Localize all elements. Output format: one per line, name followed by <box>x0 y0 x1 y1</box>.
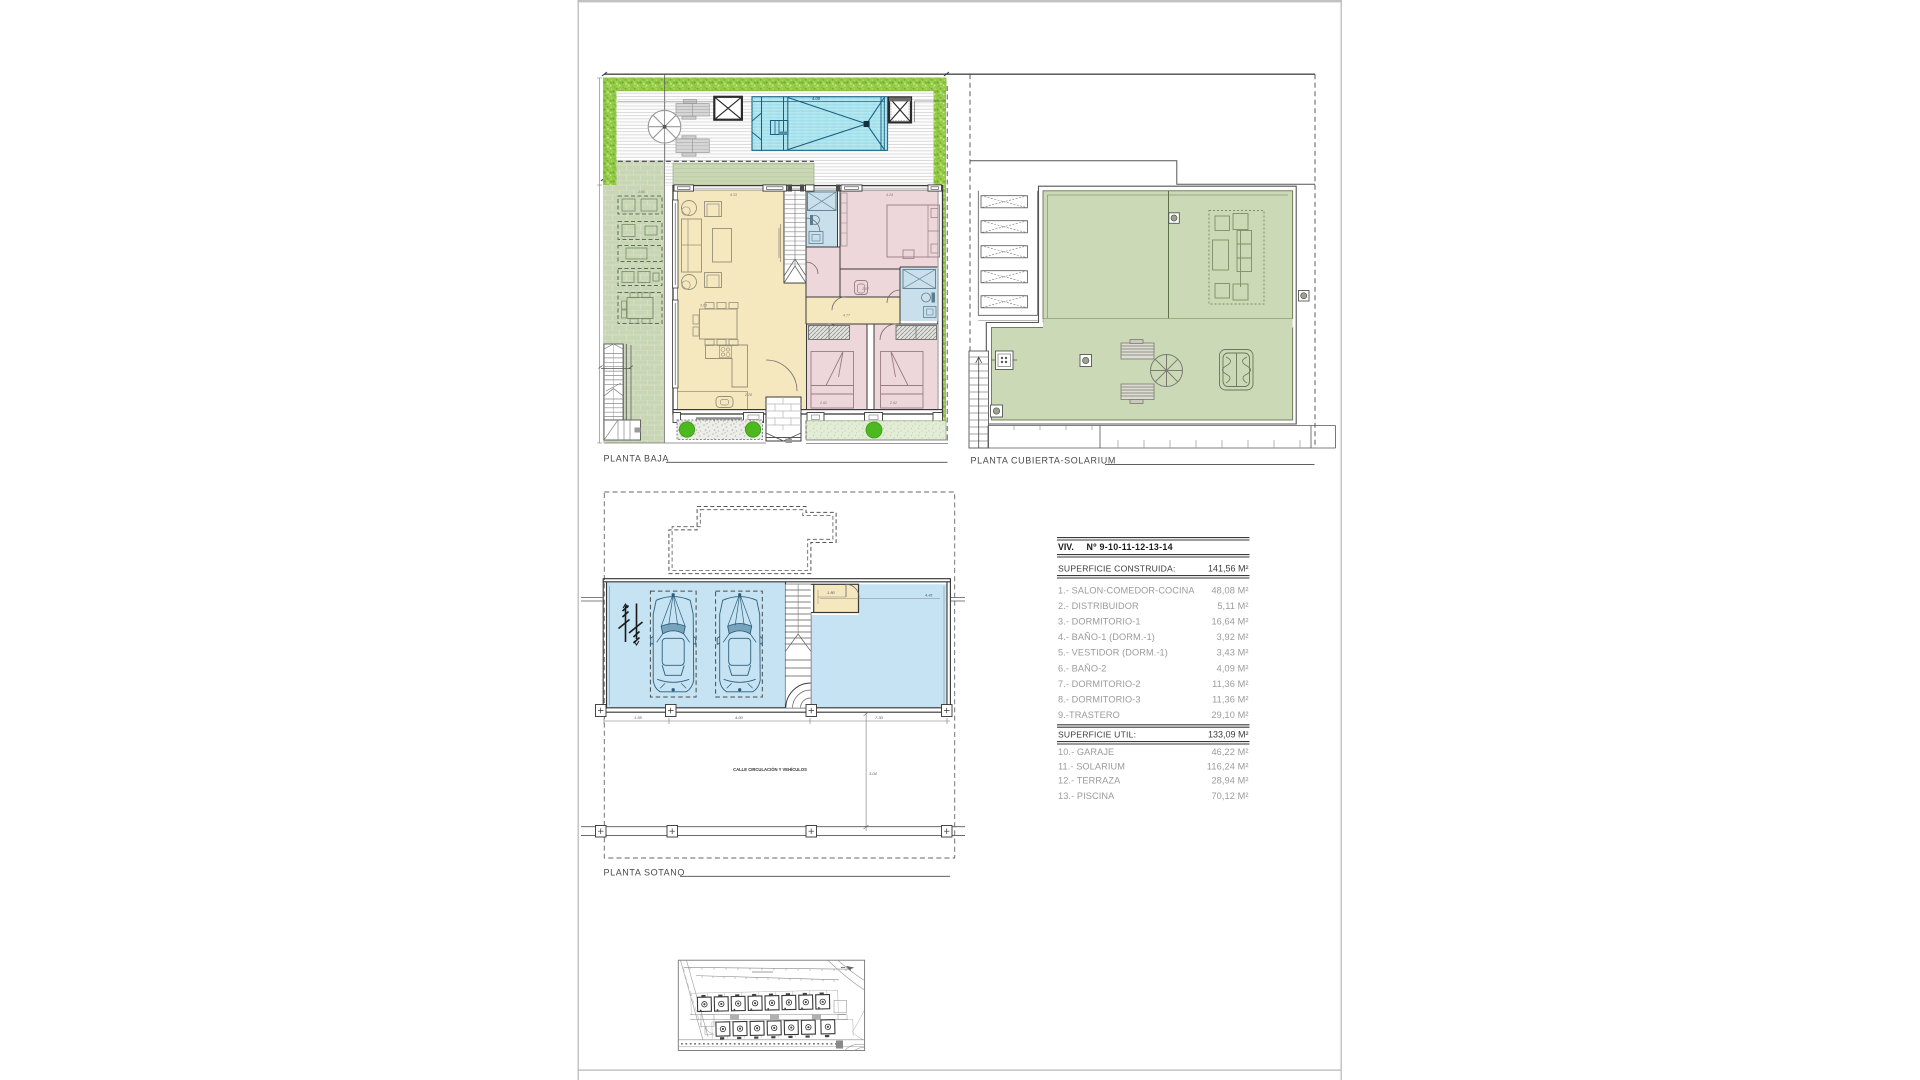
svg-text:PLANTA SOTANO: PLANTA SOTANO <box>604 868 685 878</box>
svg-text:5,11 M²: 5,11 M² <box>1217 601 1248 611</box>
svg-text:4,09 M²: 4,09 M² <box>1217 663 1249 673</box>
svg-text:8.- DORMITORIO-3: 8.- DORMITORIO-3 <box>1058 694 1141 704</box>
svg-text:2.- DISTRIBUIDOR: 2.- DISTRIBUIDOR <box>1058 601 1139 611</box>
svg-text:4.77: 4.77 <box>843 314 851 318</box>
svg-text:9.-TRASTERO: 9.-TRASTERO <box>1058 710 1120 720</box>
svg-text:11.- SOLARIUM: 11.- SOLARIUM <box>1058 761 1125 771</box>
svg-text:12.- TERRAZA: 12.- TERRAZA <box>1058 776 1121 786</box>
svg-text:29,10 M²: 29,10 M² <box>1211 710 1248 720</box>
svg-text:4.24: 4.24 <box>886 193 893 197</box>
svg-text:3.04: 3.04 <box>869 771 878 776</box>
svg-text:48,08 M²: 48,08 M² <box>1211 586 1248 596</box>
svg-text:133,09 M²: 133,09 M² <box>1208 730 1249 740</box>
svg-text:13.- PISCINA: 13.- PISCINA <box>1058 791 1115 801</box>
svg-text:SUPERFICIE UTIL:: SUPERFICIE UTIL: <box>1058 730 1136 740</box>
svg-text:46,22 M²: 46,22 M² <box>1211 747 1248 757</box>
svg-text:4.33: 4.33 <box>730 193 737 197</box>
svg-text:2.28: 2.28 <box>744 393 752 397</box>
svg-text:SUPERFICIE CONSTRUIDA:: SUPERFICIE CONSTRUIDA: <box>1058 564 1176 574</box>
svg-text:VIV.: VIV. <box>1058 542 1074 552</box>
svg-text:3,43 M²: 3,43 M² <box>1217 648 1249 658</box>
svg-text:28,94 M²: 28,94 M² <box>1211 776 1248 786</box>
svg-text:PLANTA CUBIERTA-SOLARIUM: PLANTA CUBIERTA-SOLARIUM <box>971 456 1116 466</box>
svg-text:7.- DORMITORIO-2: 7.- DORMITORIO-2 <box>1058 679 1141 689</box>
svg-text:4.41: 4.41 <box>925 593 933 598</box>
svg-text:CALLE CIRCULACIÓN Y VEHÍCULOS: CALLE CIRCULACIÓN Y VEHÍCULOS <box>733 767 807 772</box>
svg-text:Nº 9-10-11-12-13-14: Nº 9-10-11-12-13-14 <box>1087 542 1173 552</box>
svg-text:1.- SALON-COMEDOR-COCINA: 1.- SALON-COMEDOR-COCINA <box>1058 586 1195 596</box>
svg-text:3.- DORMITORIO-1: 3.- DORMITORIO-1 <box>1058 617 1141 627</box>
svg-text:6.- BAÑO-2: 6.- BAÑO-2 <box>1058 663 1106 673</box>
svg-text:116,24 M²: 116,24 M² <box>1207 761 1249 771</box>
svg-text:11,36 M²: 11,36 M² <box>1212 679 1248 689</box>
svg-text:3,92 M²: 3,92 M² <box>1217 632 1249 642</box>
svg-text:1.55: 1.55 <box>634 715 643 720</box>
svg-text:141,56 M²: 141,56 M² <box>1208 564 1249 574</box>
svg-text:PLANTA BAJA: PLANTA BAJA <box>604 454 669 464</box>
svg-text:3.63: 3.63 <box>700 304 707 308</box>
svg-text:4.00: 4.00 <box>812 96 821 101</box>
svg-text:11,36 M²: 11,36 M² <box>1212 694 1248 704</box>
svg-text:2.07: 2.07 <box>861 287 870 291</box>
svg-text:2.62: 2.62 <box>819 401 827 405</box>
svg-text:2.62: 2.62 <box>889 401 897 405</box>
svg-text:4.- BAÑO-1 (DORM.-1): 4.- BAÑO-1 (DORM.-1) <box>1058 632 1155 642</box>
svg-text:2.60: 2.60 <box>637 190 645 194</box>
svg-text:1.80: 1.80 <box>827 590 836 595</box>
svg-text:7.30: 7.30 <box>875 715 884 720</box>
svg-text:10.- GARAJE: 10.- GARAJE <box>1058 747 1114 757</box>
svg-text:4.00: 4.00 <box>735 715 744 720</box>
svg-text:70,12 M²: 70,12 M² <box>1211 791 1248 801</box>
svg-text:16,64 M²: 16,64 M² <box>1211 617 1248 627</box>
svg-text:5.- VESTIDOR (DORM.-1): 5.- VESTIDOR (DORM.-1) <box>1058 648 1168 658</box>
